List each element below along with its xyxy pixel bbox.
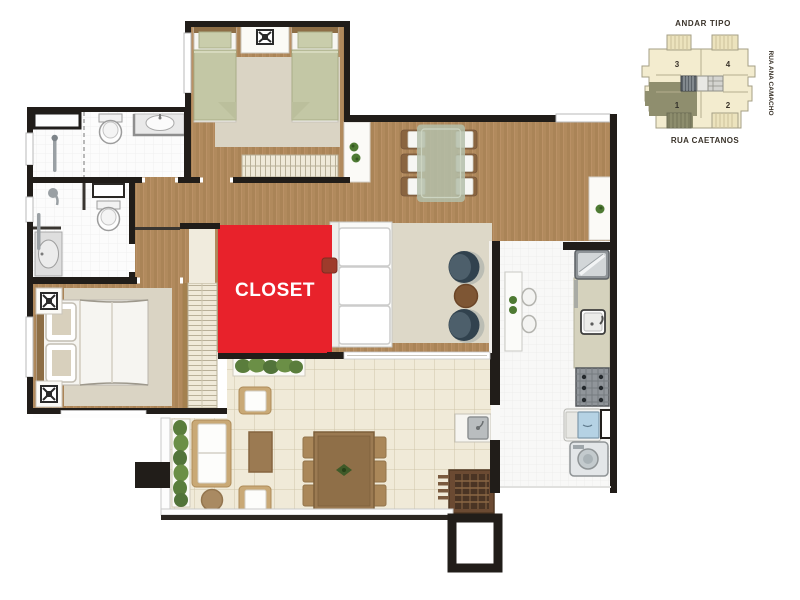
svg-text:RUA CAETANOS: RUA CAETANOS [671,136,740,145]
svg-text:1: 1 [675,101,680,110]
svg-text:RUA ANA CAMACHO: RUA ANA CAMACHO [767,51,774,116]
svg-text:3: 3 [675,60,680,69]
svg-text:CLOSET: CLOSET [235,280,315,301]
svg-text:2: 2 [726,101,731,110]
svg-text:4: 4 [726,60,731,69]
svg-text:ANDAR TIPO: ANDAR TIPO [675,19,731,28]
